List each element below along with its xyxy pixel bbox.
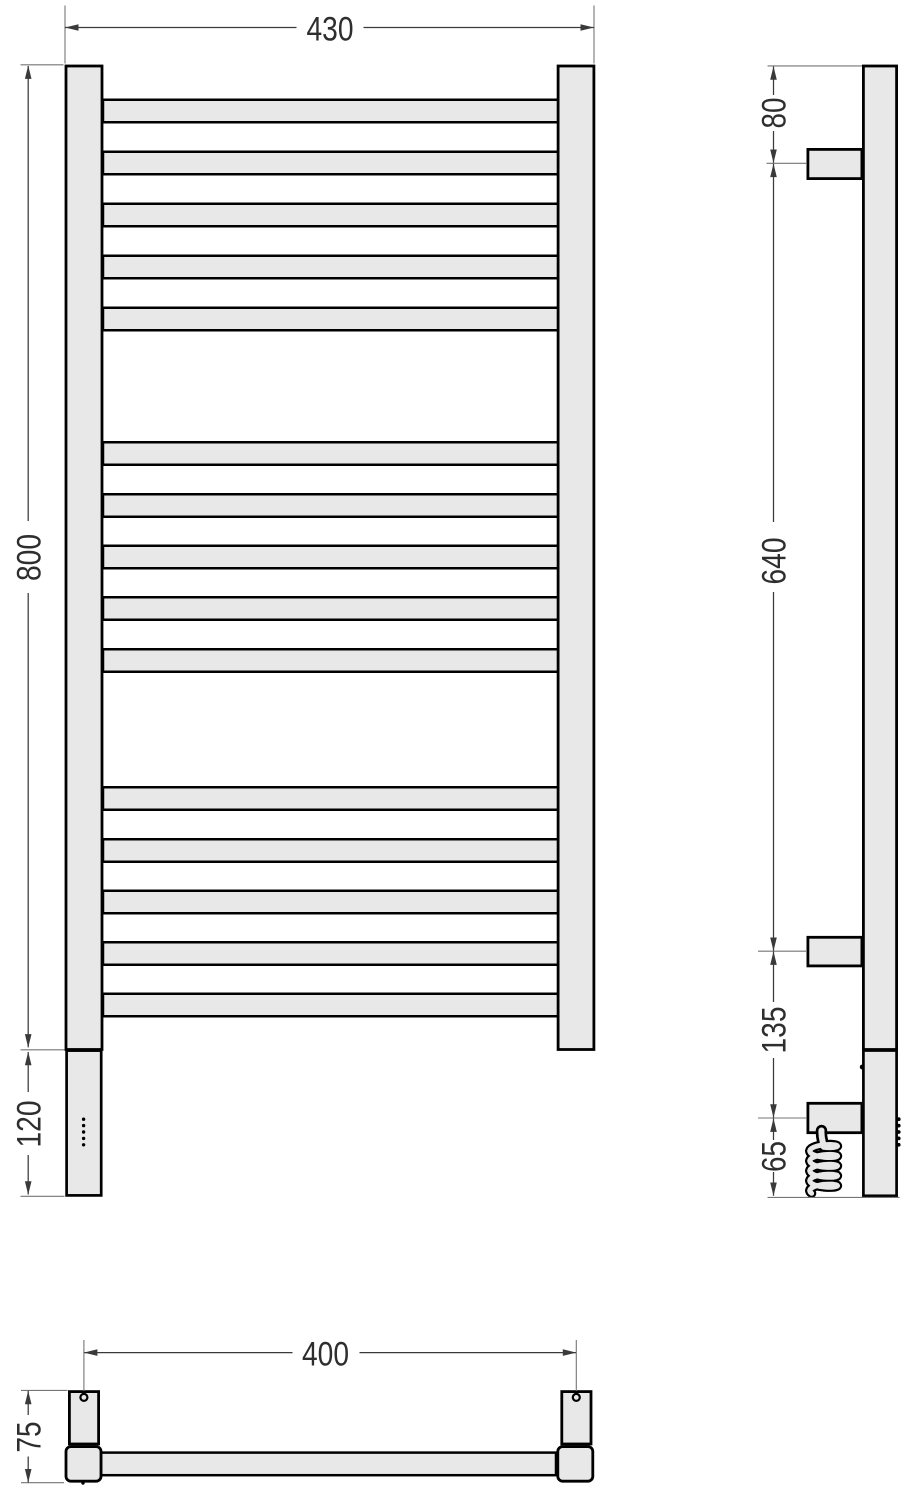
svg-text:400: 400 xyxy=(302,1336,349,1374)
svg-text:75: 75 xyxy=(11,1422,49,1453)
svg-text:120: 120 xyxy=(11,1101,49,1148)
svg-text:80: 80 xyxy=(755,98,793,129)
svg-text:430: 430 xyxy=(307,11,354,49)
svg-text:800: 800 xyxy=(11,534,49,581)
svg-text:135: 135 xyxy=(755,1007,793,1054)
svg-text:65: 65 xyxy=(755,1141,793,1172)
svg-text:640: 640 xyxy=(755,538,793,585)
